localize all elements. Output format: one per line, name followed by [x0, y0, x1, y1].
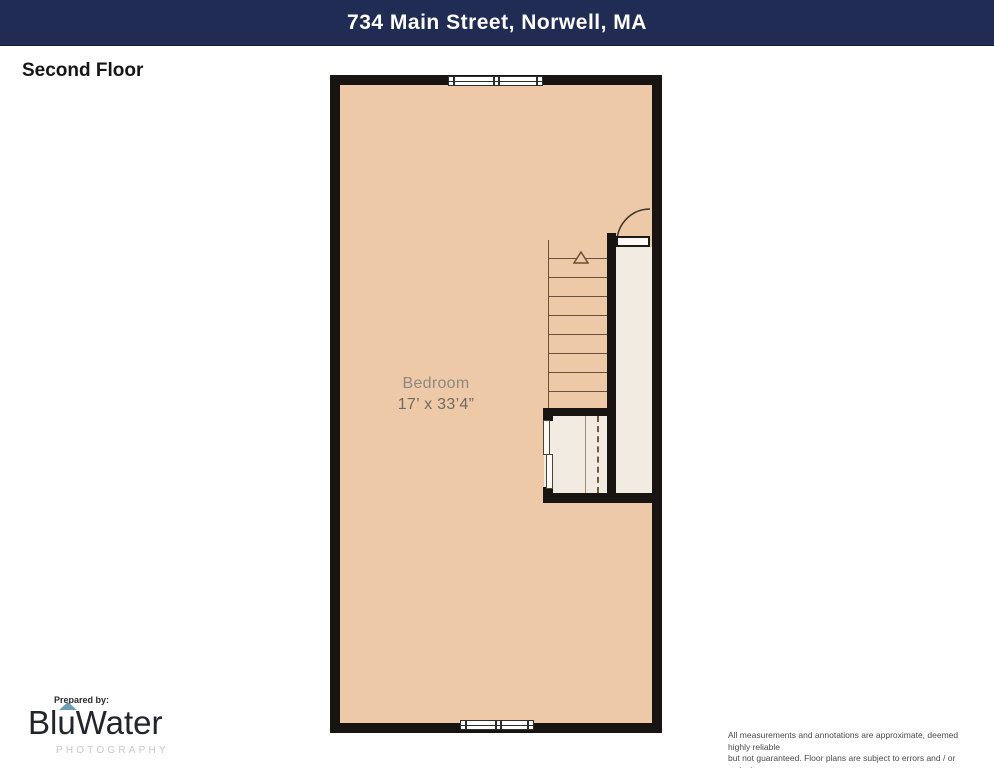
- disclaimer-line: All measurements and annotations are app…: [728, 730, 978, 753]
- closet-door-jamb: [543, 487, 553, 503]
- stairwell: [616, 247, 652, 493]
- window-top-icon: [448, 76, 543, 86]
- window-mullion: [500, 721, 502, 729]
- window-mullion: [465, 721, 467, 729]
- window-mullion: [536, 77, 538, 85]
- brand-part: Bl: [28, 704, 57, 741]
- floor-plan: Bedroom 17’ x 33’4”: [330, 75, 662, 733]
- staircase: [548, 240, 608, 408]
- logo-roof-icon: [59, 702, 77, 710]
- bluwater-logo: BluWater: [28, 706, 163, 739]
- closet-sliding-door-panel: [543, 420, 550, 455]
- window-midline: [461, 725, 533, 726]
- disclaimer: All measurements and annotations are app…: [728, 730, 978, 768]
- closet-bottom-wall: [543, 493, 662, 503]
- window-mullion: [498, 77, 500, 85]
- closet-top-wall: [543, 408, 616, 416]
- room-label-block: Bedroom 17’ x 33’4”: [356, 375, 516, 414]
- room-dimensions: 17’ x 33’4”: [356, 396, 516, 414]
- closet-sliding-door-panel: [546, 454, 553, 489]
- window-mullion: [527, 721, 529, 729]
- page: 734 Main Street, Norwell, MA Second Floo…: [0, 0, 994, 768]
- window-mullion: [495, 721, 497, 729]
- page-title: 734 Main Street, Norwell, MA: [347, 11, 647, 35]
- photography-label: PHOTOGRAPHY: [56, 745, 169, 756]
- floor-label: Second Floor: [22, 60, 143, 82]
- window-bottom-icon: [460, 720, 534, 730]
- disclaimer-line: but not guaranteed. Floor plans are subj…: [728, 753, 978, 768]
- door-leaf-icon: [616, 236, 650, 247]
- brand-part: Water: [76, 704, 163, 741]
- window-mullion: [453, 77, 455, 85]
- header-bar: 734 Main Street, Norwell, MA: [0, 0, 994, 46]
- window-mullion: [493, 77, 495, 85]
- stair-direction-arrow-icon: [573, 251, 589, 265]
- closet-shelf-line: [585, 416, 586, 493]
- room-name: Bedroom: [356, 375, 516, 393]
- stairwell-wall: [607, 233, 616, 503]
- closet-rod-dashed-line: [597, 416, 599, 493]
- window-midline: [449, 81, 542, 82]
